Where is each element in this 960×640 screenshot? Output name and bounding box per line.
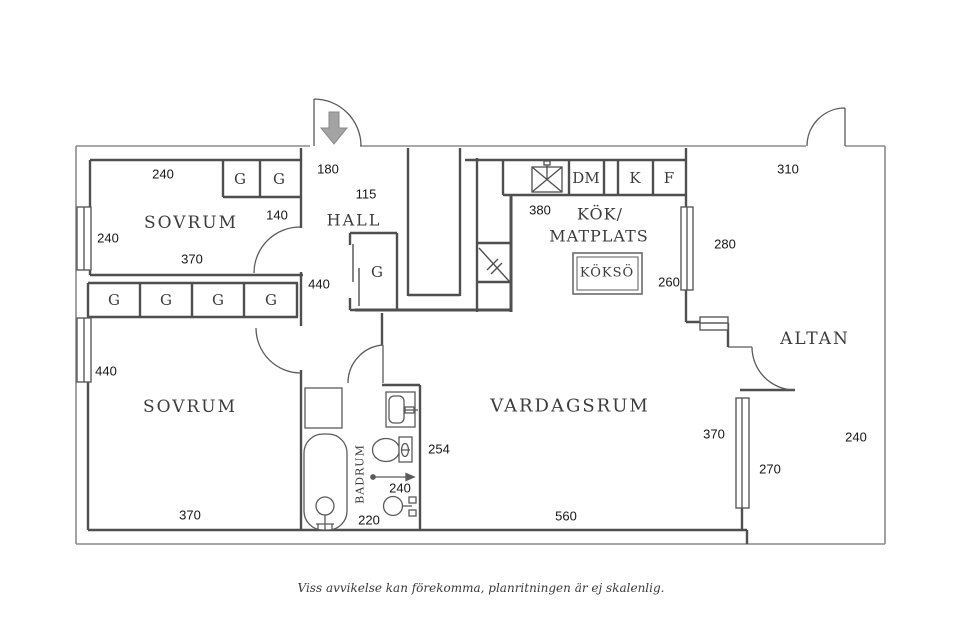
toilet [373,437,413,462]
floorplan-drawing [0,0,960,640]
dim-badrum-width: 240 [389,481,411,496]
dim-badrum-bottom: 220 [358,513,380,528]
window-vardagsrum-altan [736,398,749,508]
closet-label: G [108,291,120,309]
dim-sovrum-top-width: 240 [152,167,174,182]
dim-hall-inner: 115 [356,187,377,202]
dim-altan-top: 310 [777,162,799,177]
sovrum-bottom-door [256,328,301,373]
stairs-symbol [479,248,509,281]
room-label-sovrum-top: SOVRUM [144,213,238,233]
closet-label: G [212,291,224,309]
dim-altan-window: 270 [759,462,781,477]
closet-label: G [273,170,285,188]
dim-sovrum-bottom-width: 370 [179,508,201,523]
kitchen-sink-icon [532,160,562,192]
room-label-kitchen-1: KÖK/ [577,205,623,224]
window-kitchen-altan [681,207,693,290]
dim-kitchen-right: 260 [658,275,680,290]
appliance-freezer: F [664,169,674,187]
window-altan-corner [700,317,728,330]
floorplan-canvas: 240 240 370 140 SOVRUM G G 180 115 HALL … [0,0,960,640]
window-sovrum-top [77,207,91,270]
altan-top-door [807,108,845,146]
dim-altan-right: 240 [845,430,867,445]
altan-vardagsrum-door [728,347,795,390]
dim-sovrum-top-closet: 140 [266,208,288,223]
sovrum-top-door [254,227,300,273]
bathroom-dim-arrow [371,474,414,481]
dim-badrum-wall: 254 [428,442,450,457]
round-sink [384,497,417,517]
room-label-vardagsrum: VARDAGSRUM [490,396,650,417]
closet-label: G [265,291,277,309]
room-label-sovrum-bottom: SOVRUM [143,397,237,417]
dim-sovrum-top-left: 240 [97,231,119,246]
bathroom-door [348,345,383,383]
dim-kitchen-left: 380 [529,203,551,218]
dim-vardagsrum-bottom: 560 [555,509,577,524]
outer-boundary [76,146,885,544]
kitchen-island-label: KÖKSÖ [580,266,634,281]
window-sovrum-bottom [77,318,91,382]
closet-label: G [234,170,246,188]
dim-altan-left: 280 [714,237,736,252]
shower-niche [305,388,342,428]
entry-arrow-icon [321,112,347,144]
bathtub [304,434,347,530]
closet-label: G [160,291,172,309]
room-label-badrum: BADRUM [354,444,367,504]
closet-label: G [371,263,383,281]
dim-sovrum-bottom-left: 440 [95,364,117,379]
room-label-kitchen-2: MATPLATS [549,227,648,246]
room-label-altan: ALTAN [780,329,850,349]
windows [77,207,749,508]
dim-hall-entry: 180 [317,162,339,177]
dim-sovrum-top-bottom: 370 [181,252,203,267]
appliance-fridge: K [629,169,640,187]
dim-vardagsrum-right: 370 [703,427,725,442]
appliance-dishwasher: DM [572,169,599,187]
dim-hall-side: 440 [308,277,330,292]
room-label-hall: HALL [327,211,382,230]
washbasin [386,392,418,427]
disclaimer-text: Viss avvikelse kan förekomma, planritnin… [298,581,665,595]
